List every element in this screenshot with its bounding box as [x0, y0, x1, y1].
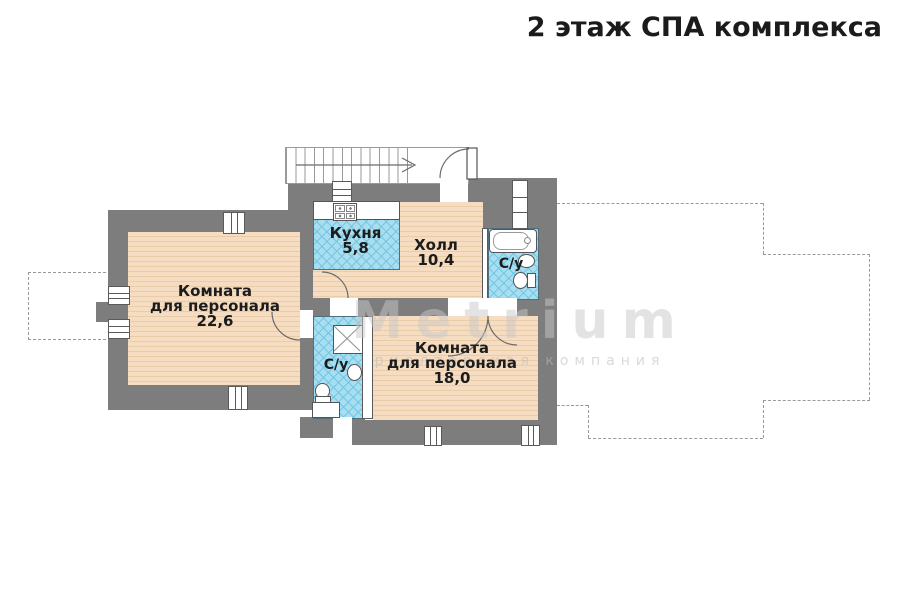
label-bathroom-top: С/у	[486, 257, 536, 272]
floor-plan-page: 2 этаж СПА комплекса	[0, 0, 900, 600]
page-title: 2 этаж СПА комплекса	[527, 12, 882, 43]
label-kitchen: Кухня 5,8	[313, 226, 398, 256]
label-staff-room-1: Комната для персонала 22,6	[115, 284, 315, 329]
entrance-door-arc	[440, 149, 469, 178]
label-staff-room-2: Комната для персонала 18,0	[352, 341, 552, 386]
bath-center-door-arc	[322, 272, 348, 298]
label-hall: Холл 10,4	[396, 238, 476, 268]
entrance-door-leaf	[467, 148, 477, 179]
label-hall-area: 10,4	[396, 253, 476, 268]
label-kitchen-area: 5,8	[313, 241, 398, 256]
label-staff-room-2-area: 18,0	[352, 371, 552, 386]
label-staff-room-1-area: 22,6	[115, 314, 315, 329]
label-bathroom-top-name: С/у	[486, 257, 536, 272]
